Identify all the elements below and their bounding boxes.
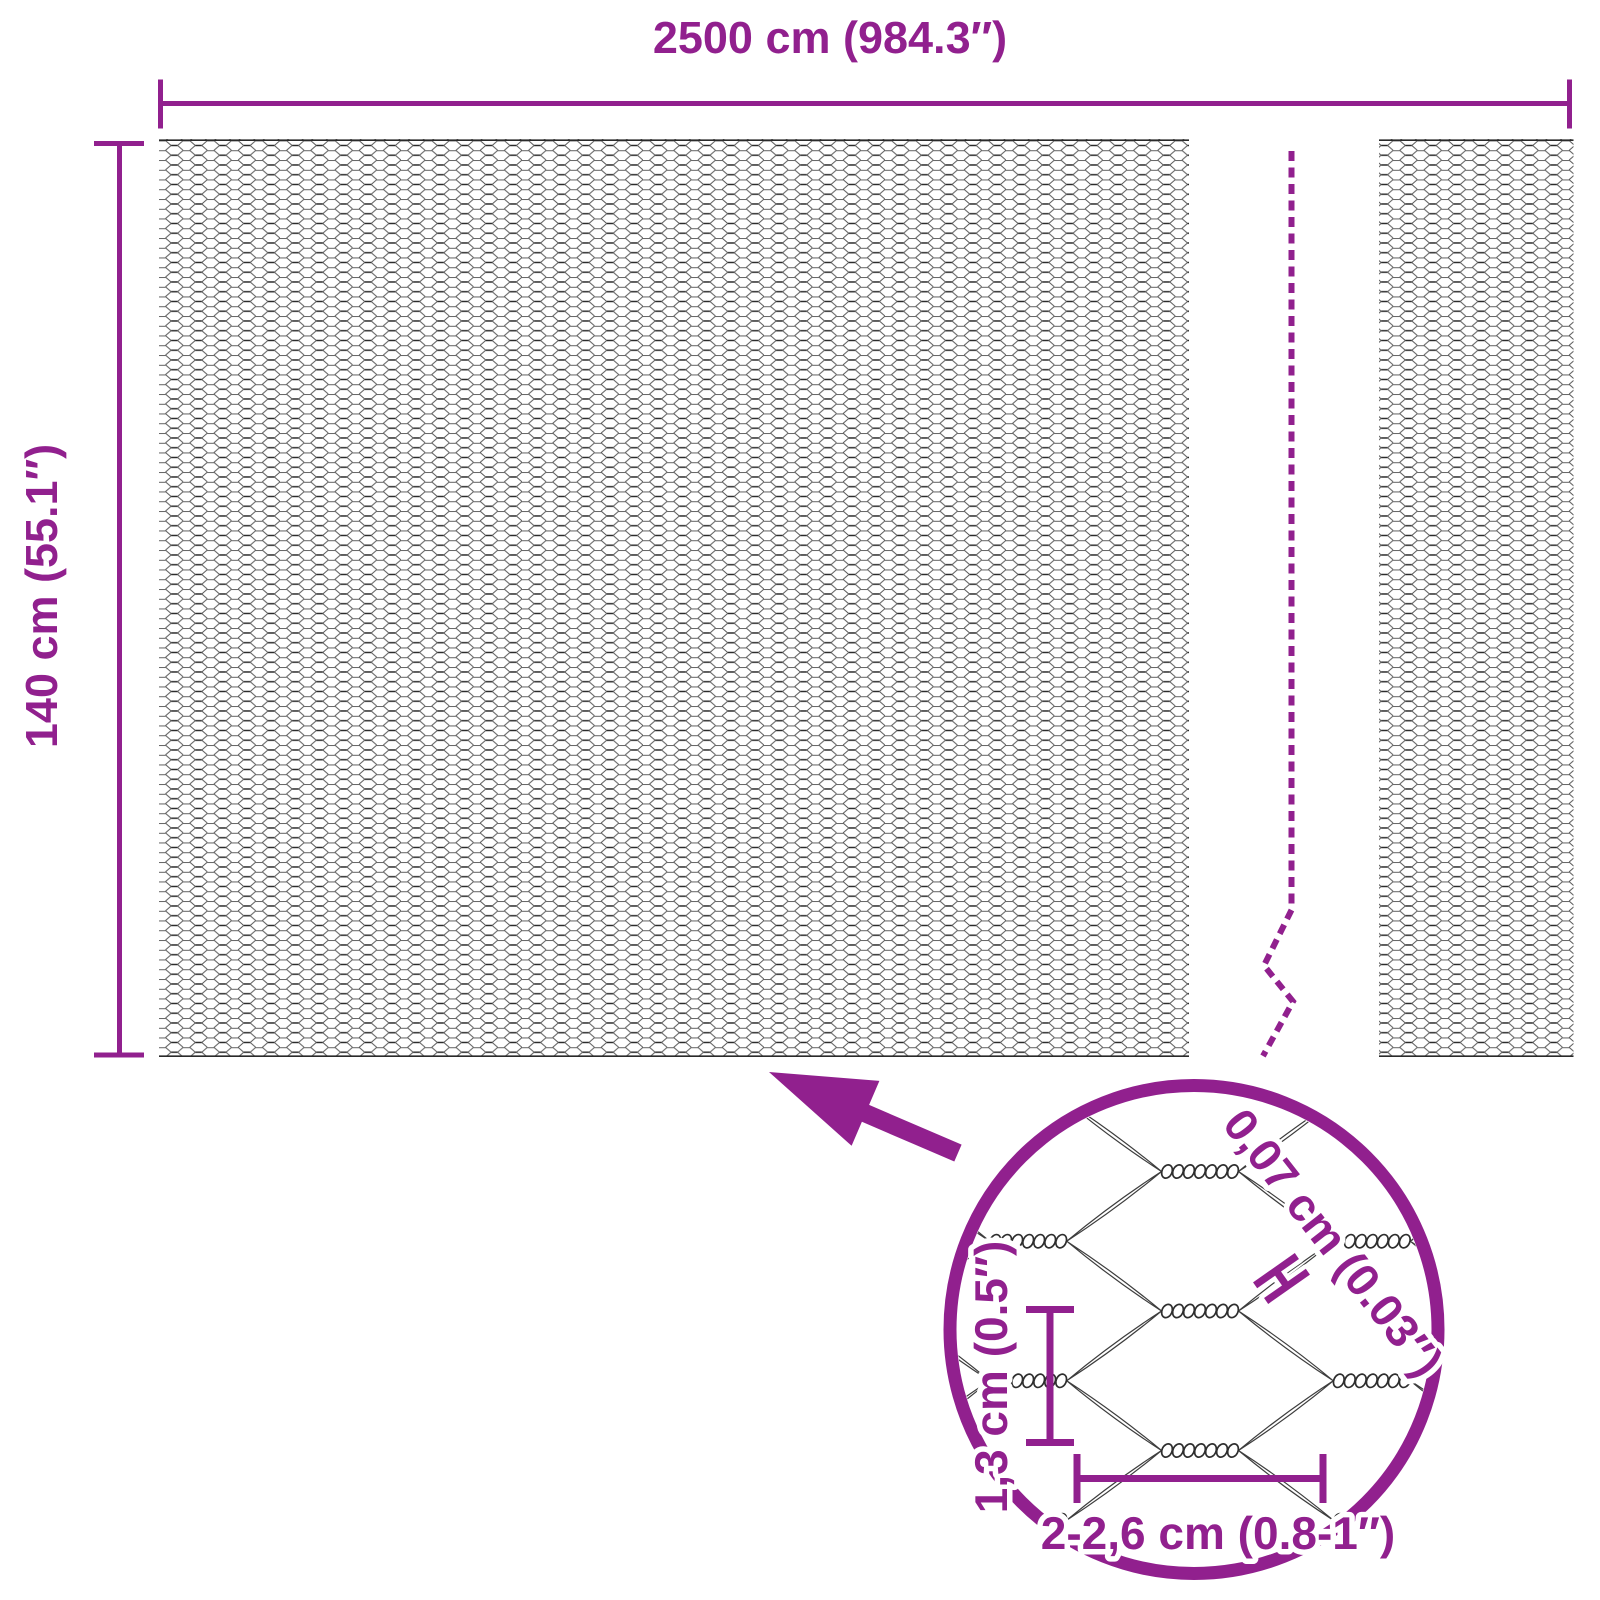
svg-text:2-2,6 cm (0.8-1″): 2-2,6 cm (0.8-1″) [1041,1507,1395,1559]
svg-text:140 cm (55.1″): 140 cm (55.1″) [16,444,67,748]
svg-text:2500 cm (984.3″): 2500 cm (984.3″) [653,12,1007,63]
svg-text:1,3 cm (0.5″): 1,3 cm (0.5″) [965,1241,1017,1514]
